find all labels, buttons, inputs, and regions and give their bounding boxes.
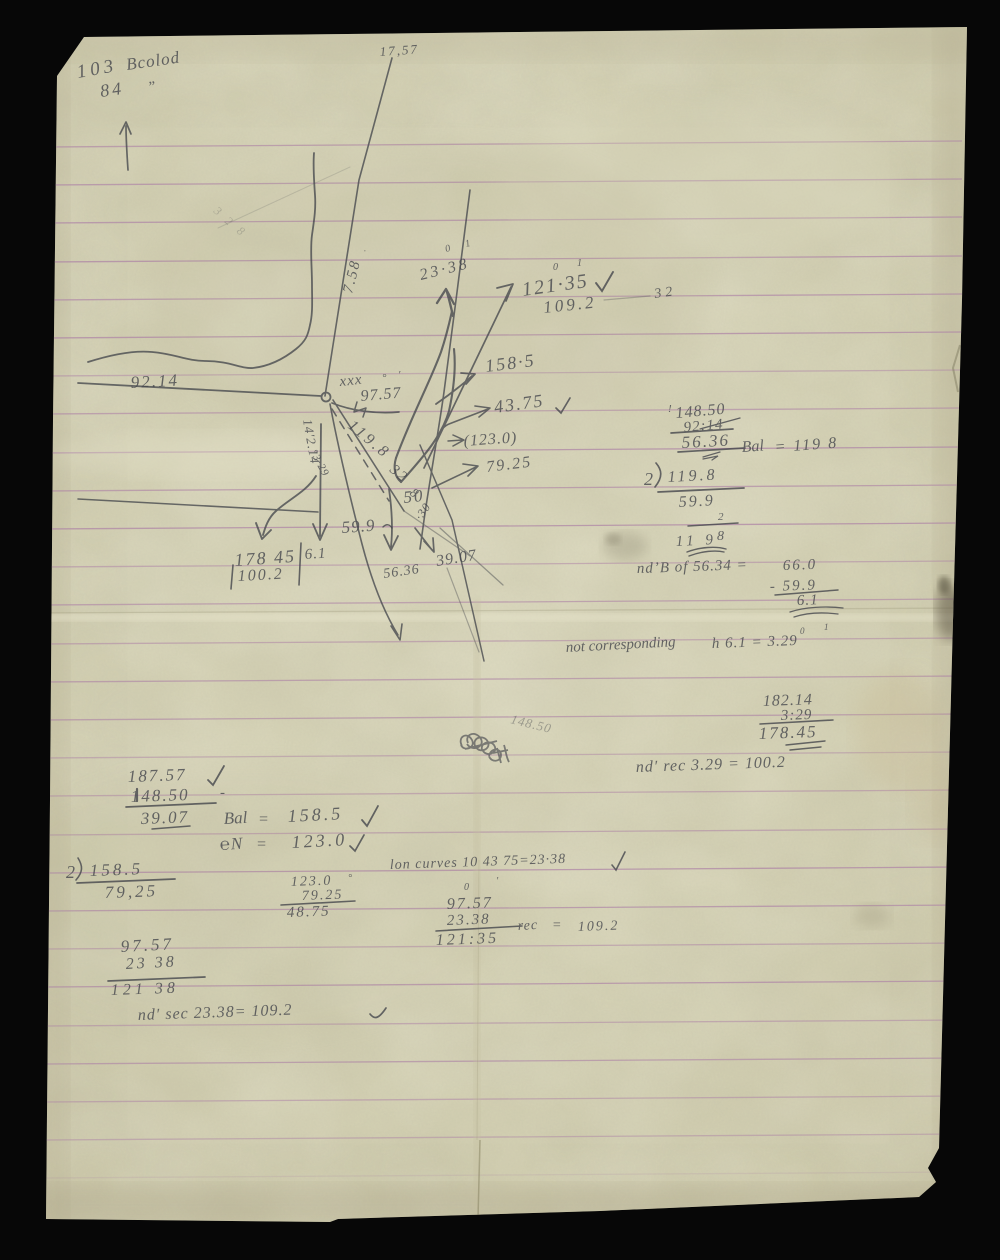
svg-text:°: °: [382, 372, 390, 384]
svg-text:!: !: [668, 403, 672, 415]
svg-text:121:35: 121:35: [436, 930, 500, 949]
svg-text:148.50: 148.50: [130, 785, 189, 806]
svg-text:=: =: [552, 918, 561, 933]
svg-text:178.45: 178.45: [758, 722, 817, 743]
svg-text:℮N: ℮N: [219, 834, 244, 854]
svg-text:Bal: Bal: [223, 808, 248, 828]
svg-text:Bal: Bal: [741, 437, 765, 456]
svg-text:123.0: 123.0: [291, 829, 347, 852]
svg-text:97.57: 97.57: [120, 934, 174, 956]
svg-text:2: 2: [718, 511, 724, 523]
svg-text:119.8: 119.8: [667, 466, 718, 486]
svg-text:59.9: 59.9: [678, 492, 715, 511]
svg-text:84: 84: [99, 78, 126, 101]
svg-text:-: -: [220, 785, 225, 801]
svg-text:=: =: [258, 811, 269, 828]
svg-text:92.14: 92.14: [130, 370, 179, 391]
svg-text:17,57: 17,57: [379, 41, 419, 59]
svg-text:h 6.1 = 3.29: h 6.1 = 3.29: [712, 633, 798, 652]
svg-text:=: =: [256, 836, 267, 853]
svg-text:39.07: 39.07: [139, 807, 189, 828]
svg-text:100.2: 100.2: [237, 566, 284, 585]
svg-text:0: 0: [464, 882, 475, 893]
svg-text:1: 1: [577, 258, 582, 269]
svg-text:·: ·: [363, 243, 366, 258]
svg-text:109.2: 109.2: [578, 919, 620, 935]
svg-text:6.1: 6.1: [797, 592, 819, 609]
svg-text:48.75: 48.75: [287, 903, 331, 921]
svg-text:8: 8: [717, 529, 724, 544]
svg-text:187.57: 187.57: [127, 765, 186, 786]
svg-text:59.9: 59.9: [341, 516, 376, 537]
svg-text:2: 2: [66, 862, 75, 882]
svg-text:32: 32: [652, 284, 677, 302]
svg-text:66.0: 66.0: [783, 557, 818, 574]
svg-text:79,25: 79,25: [104, 881, 158, 902]
svg-text:6.1: 6.1: [304, 546, 327, 563]
svg-text:23.38: 23.38: [447, 911, 491, 929]
svg-text:97.57: 97.57: [447, 894, 494, 913]
svg-text:0: 0: [553, 262, 564, 273]
svg-text:121 38: 121 38: [111, 980, 180, 999]
svg-text:1: 1: [824, 622, 829, 632]
svg-text:0: 0: [800, 626, 809, 636]
svg-text:2: 2: [644, 469, 653, 489]
svg-text:158.5: 158.5: [287, 803, 343, 826]
svg-text:°: °: [348, 873, 352, 884]
svg-text:158.5: 158.5: [89, 859, 143, 880]
svg-text:23 38: 23 38: [125, 953, 177, 973]
svg-text:97.57: 97.57: [360, 384, 402, 405]
